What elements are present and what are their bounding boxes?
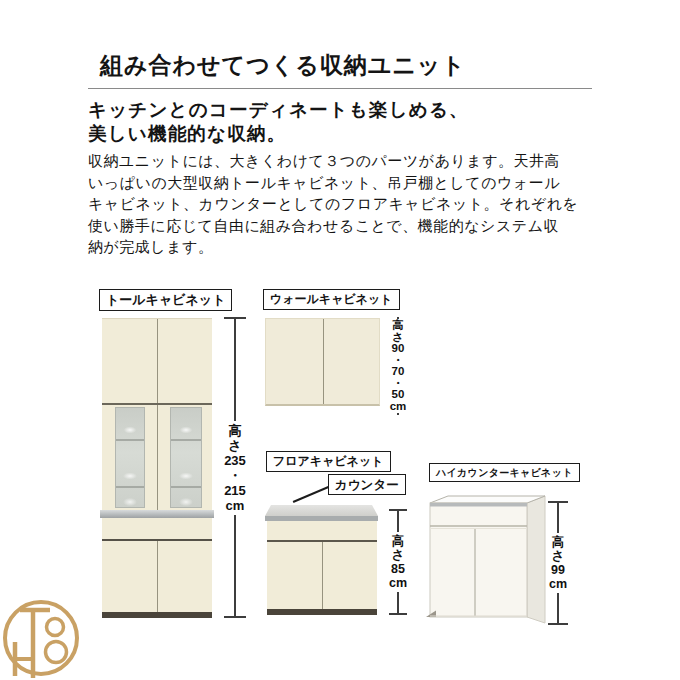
floor-doors — [267, 542, 377, 609]
dimension-floor-cabinet: 高さ 85 cm — [389, 509, 407, 615]
dimension-tall-cabinet: 高さ 235 ・ 215 cm — [224, 317, 246, 618]
dimension-line — [557, 503, 559, 533]
tall-lower-doors — [102, 541, 212, 612]
tall-upper-doors — [102, 318, 212, 405]
intro-paragraph: 収納ユニットには、大きくわけて３つのパーツがあります。天井高 いっぱいの大型収納… — [88, 150, 588, 258]
brand-monogram-icon — [5, 602, 77, 678]
tall-cabinet-illustration — [102, 318, 212, 618]
label-wall-cabinet: ウォールキャビネット — [263, 289, 400, 310]
dimension-line — [234, 319, 236, 421]
dimension-line — [234, 515, 236, 617]
page-subtitle: キッチンとのコーディネートも楽しめる、 美しい機能的な収納。 — [88, 98, 469, 146]
dimension-label: 高さ 90 ・ 70 ・ 50 cm — [389, 319, 407, 413]
page-title: 組み合わせてつくる収納ユニット — [100, 50, 466, 81]
dimension-line — [397, 592, 399, 613]
title-underline — [88, 88, 592, 89]
door-divider-line — [322, 542, 323, 609]
counter-pointer-line — [293, 486, 329, 503]
floor-drawer-front — [267, 521, 377, 542]
brand-watermark-logo — [0, 598, 84, 680]
door-divider-line — [323, 319, 324, 404]
label-high-counter-cabinet: ハイカウンターキャビネット — [429, 463, 580, 482]
dimension-cap — [548, 623, 568, 625]
dimension-cap — [224, 616, 246, 618]
label-floor-cabinet: フロアキャビネット — [266, 451, 391, 472]
floor-cabinet-base — [267, 609, 377, 615]
dimension-high-counter-cabinet: 高さ 99 cm — [548, 501, 568, 625]
shelf-line — [171, 439, 201, 441]
glass-door-left — [115, 407, 145, 508]
tall-cabinet-base — [102, 612, 212, 618]
catalog-page: 組み合わせてつくる収納ユニット キッチンとのコーディネートも楽しめる、 美しい機… — [0, 0, 680, 680]
dimension-line — [397, 511, 399, 532]
tall-counter-strip — [100, 510, 214, 518]
tall-drawer-front — [102, 518, 212, 541]
dimension-cap — [389, 613, 407, 615]
dimension-wall-cabinet: 高さ 90 ・ 70 ・ 50 cm — [389, 317, 407, 406]
high-counter-cabinet-illustration — [423, 490, 558, 630]
door-divider-line — [157, 405, 158, 510]
shelf-line — [116, 439, 144, 441]
door-divider-line — [157, 319, 158, 403]
glass-door-right — [170, 407, 202, 508]
dimension-line — [397, 413, 399, 415]
wall-cabinet-illustration — [265, 318, 380, 406]
floor-counter-top — [265, 505, 378, 516]
tall-glass-section — [102, 405, 212, 510]
label-tall-cabinet: トールキャビネット — [99, 289, 232, 311]
dimension-line — [557, 593, 559, 623]
floor-cabinet-illustration — [267, 521, 377, 615]
label-counter: カウンター — [328, 474, 406, 495]
dimension-label: 高さ 235 ・ 215 cm — [224, 421, 246, 515]
door-divider-line — [157, 541, 158, 612]
shelf-line — [116, 486, 144, 488]
dimension-label: 高さ 85 cm — [389, 532, 407, 592]
dimension-label: 高さ 99 cm — [548, 533, 568, 593]
shelf-line — [171, 486, 201, 488]
